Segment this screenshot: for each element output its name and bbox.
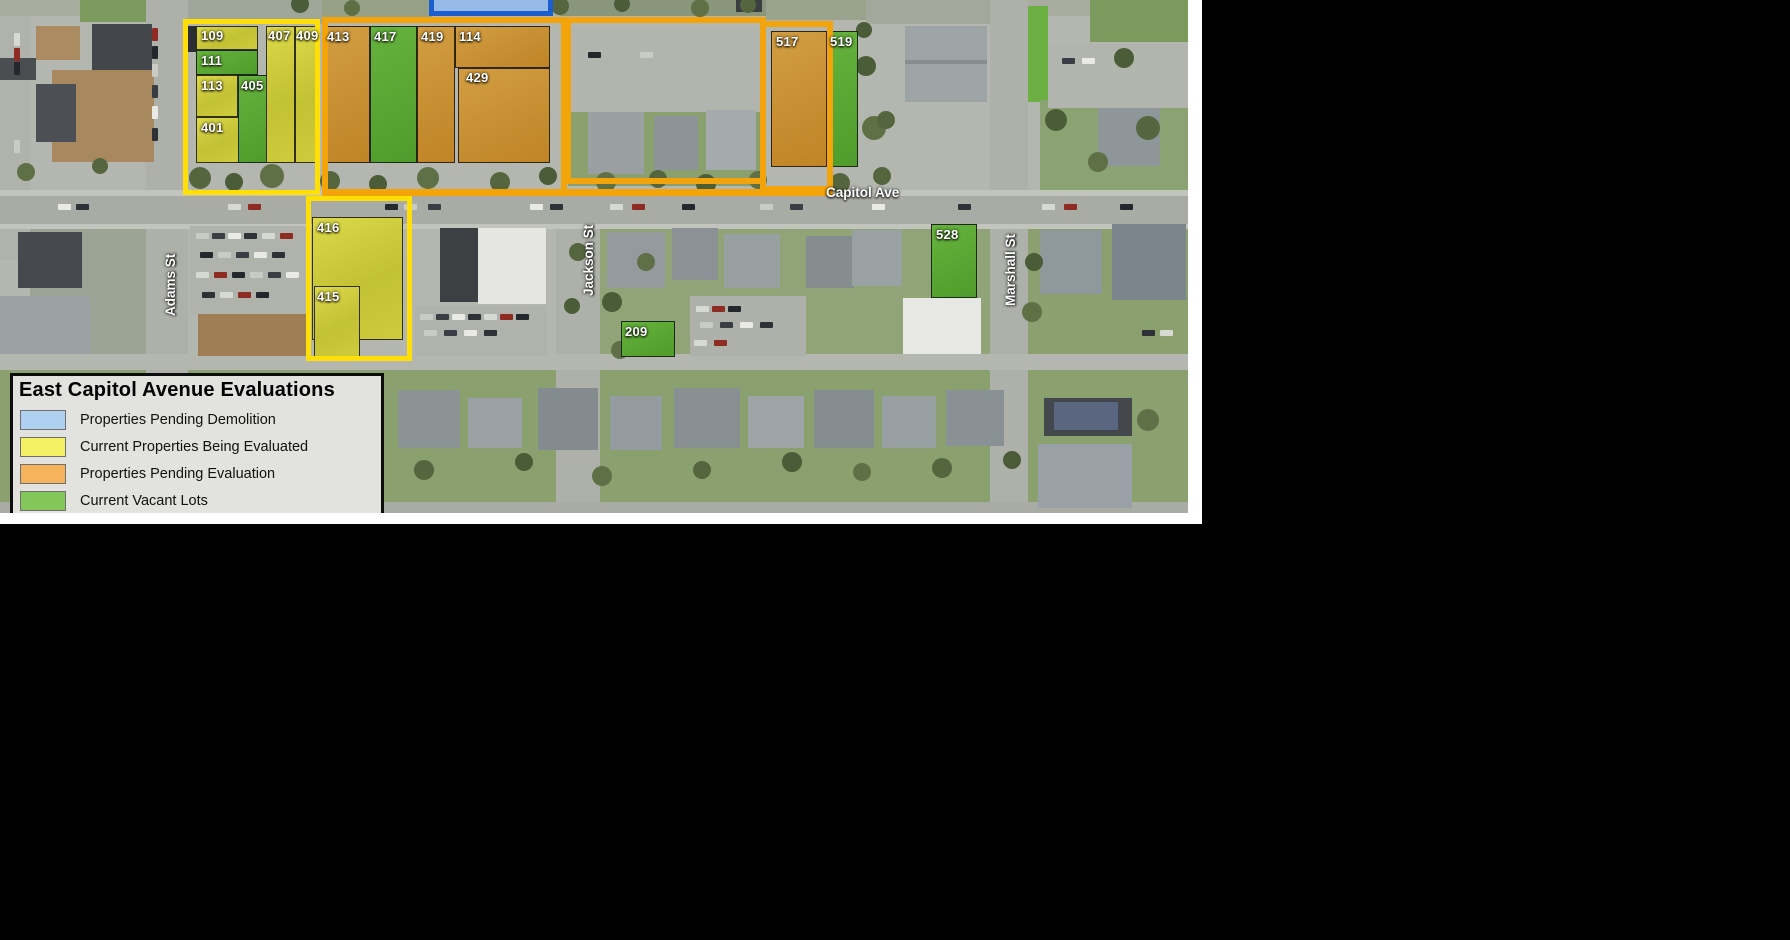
white-margin-bottom bbox=[0, 513, 1202, 524]
parcel-label-409: 409 bbox=[296, 29, 319, 42]
car bbox=[14, 33, 20, 46]
tree bbox=[1045, 109, 1067, 131]
legend: East Capitol Avenue Evaluations Properti… bbox=[10, 373, 384, 513]
parcel-label-114: 114 bbox=[459, 30, 481, 43]
tree bbox=[877, 111, 895, 129]
car bbox=[152, 64, 158, 77]
legend-item-0: Properties Pending Demolition bbox=[20, 406, 381, 433]
tree bbox=[414, 460, 434, 480]
car bbox=[272, 252, 285, 258]
legend-swatch-1 bbox=[20, 437, 66, 457]
tree bbox=[344, 0, 360, 16]
car bbox=[228, 233, 241, 239]
car bbox=[468, 314, 481, 320]
car bbox=[14, 140, 20, 153]
scenery-rect bbox=[0, 296, 90, 354]
parcel-label-528: 528 bbox=[936, 228, 959, 241]
car bbox=[250, 272, 263, 278]
car bbox=[1064, 204, 1077, 210]
scenery-rect bbox=[607, 232, 665, 288]
car bbox=[790, 204, 803, 210]
scenery-rect bbox=[610, 396, 662, 450]
parcel-label-111: 111 bbox=[201, 54, 222, 67]
scenery-rect bbox=[0, 354, 1188, 370]
tree bbox=[602, 292, 622, 312]
scenery-rect bbox=[1112, 224, 1186, 300]
car bbox=[714, 340, 727, 346]
car bbox=[464, 330, 477, 336]
scenery-rect bbox=[440, 228, 478, 302]
scenery-rect bbox=[478, 228, 546, 304]
legend-item-label-1: Current Properties Being Evaluated bbox=[80, 439, 308, 455]
legend-item-label-0: Properties Pending Demolition bbox=[80, 412, 276, 428]
car bbox=[428, 204, 441, 210]
car bbox=[530, 204, 543, 210]
tree bbox=[592, 466, 612, 486]
car bbox=[550, 204, 563, 210]
car bbox=[212, 233, 225, 239]
car bbox=[214, 272, 227, 278]
car bbox=[632, 204, 645, 210]
car bbox=[420, 314, 433, 320]
scenery-rect bbox=[538, 388, 598, 450]
car bbox=[152, 46, 158, 59]
car bbox=[872, 204, 885, 210]
evaluation-outline-pending-demolition bbox=[429, 0, 553, 16]
car bbox=[424, 330, 437, 336]
scenery-rect bbox=[1054, 402, 1118, 430]
scenery-rect bbox=[18, 232, 82, 288]
street-label-marshall-st: Marshall St bbox=[1004, 234, 1018, 306]
legend-swatch-2 bbox=[20, 464, 66, 484]
scenery-rect bbox=[1038, 444, 1132, 508]
scenery-rect bbox=[766, 0, 866, 20]
car bbox=[152, 85, 158, 98]
tree bbox=[1137, 409, 1159, 431]
car bbox=[58, 204, 71, 210]
car bbox=[268, 272, 281, 278]
parcel-label-109: 109 bbox=[201, 29, 224, 42]
car bbox=[200, 252, 213, 258]
legend-item-2: Properties Pending Evaluation bbox=[20, 460, 381, 487]
car bbox=[236, 252, 249, 258]
car bbox=[436, 314, 449, 320]
car bbox=[220, 292, 233, 298]
legend-item-3: Current Vacant Lots bbox=[20, 487, 381, 513]
parcel-label-401: 401 bbox=[201, 121, 224, 134]
street-label-jackson-st: Jackson St bbox=[582, 225, 596, 296]
scenery-rect bbox=[36, 84, 76, 142]
scenery-rect bbox=[1090, 0, 1188, 42]
legend-rows: Properties Pending DemolitionCurrent Pro… bbox=[13, 406, 381, 513]
parcel-label-416: 416 bbox=[317, 221, 340, 234]
scenery-rect bbox=[905, 26, 987, 102]
parcel-label-113: 113 bbox=[201, 79, 223, 92]
white-margin-right bbox=[1188, 0, 1202, 524]
tree bbox=[693, 461, 711, 479]
tree bbox=[1003, 451, 1021, 469]
car bbox=[760, 204, 773, 210]
tree bbox=[932, 458, 952, 478]
tree bbox=[1025, 253, 1043, 271]
car bbox=[248, 204, 261, 210]
scenery-rect bbox=[724, 234, 780, 288]
scenery-rect bbox=[190, 226, 308, 314]
car bbox=[500, 314, 513, 320]
aerial-map-image: 1091111134014054074094134174191144295175… bbox=[0, 0, 1188, 513]
car bbox=[152, 106, 158, 119]
tree bbox=[1136, 116, 1160, 140]
car bbox=[286, 272, 299, 278]
tree bbox=[856, 22, 872, 38]
scenery-rect bbox=[36, 26, 80, 60]
car bbox=[256, 292, 269, 298]
tree bbox=[17, 163, 35, 181]
tree bbox=[873, 167, 891, 185]
car bbox=[232, 272, 245, 278]
evaluation-outline-pending-evaluation-mid bbox=[565, 17, 766, 184]
scenery-rect bbox=[866, 0, 996, 24]
car bbox=[1082, 58, 1095, 64]
evaluation-outline-being-evaluated-north bbox=[183, 19, 320, 195]
car bbox=[728, 306, 741, 312]
scenery-rect bbox=[806, 236, 854, 288]
tree bbox=[782, 452, 802, 472]
car bbox=[196, 233, 209, 239]
parcel-label-209: 209 bbox=[625, 325, 648, 338]
car bbox=[516, 314, 529, 320]
car bbox=[1142, 330, 1155, 336]
legend-item-label-3: Current Vacant Lots bbox=[80, 493, 208, 509]
legend-swatch-0 bbox=[20, 410, 66, 430]
car bbox=[228, 204, 241, 210]
scenery-rect bbox=[92, 24, 152, 70]
car bbox=[694, 340, 707, 346]
car bbox=[1062, 58, 1075, 64]
car bbox=[280, 233, 293, 239]
scenery-rect bbox=[468, 398, 522, 448]
car bbox=[712, 306, 725, 312]
car bbox=[238, 292, 251, 298]
scenery-rect bbox=[1040, 230, 1102, 294]
legend-item-label-2: Properties Pending Evaluation bbox=[80, 466, 275, 482]
scenery-rect bbox=[748, 396, 804, 448]
car bbox=[484, 314, 497, 320]
car bbox=[700, 322, 713, 328]
legend-swatch-3 bbox=[20, 491, 66, 511]
viewer-canvas: { "map_title": "East Capitol Avenue Eval… bbox=[0, 0, 1790, 940]
car bbox=[958, 204, 971, 210]
parcel-label-519: 519 bbox=[830, 35, 853, 48]
tree bbox=[1022, 302, 1042, 322]
tree bbox=[856, 56, 876, 76]
car bbox=[218, 252, 231, 258]
scenery-rect bbox=[882, 396, 936, 448]
car bbox=[202, 292, 215, 298]
scenery-rect bbox=[0, 196, 1188, 224]
car bbox=[152, 128, 158, 141]
car bbox=[14, 62, 20, 75]
scenery-rect bbox=[852, 230, 902, 286]
parcel-label-419: 419 bbox=[421, 30, 444, 43]
car bbox=[76, 204, 89, 210]
car bbox=[682, 204, 695, 210]
parcel-label-415: 415 bbox=[317, 290, 340, 303]
scenery-rect bbox=[80, 0, 150, 22]
evaluation-outline-pending-evaluation-west bbox=[322, 17, 567, 195]
car bbox=[760, 322, 773, 328]
car bbox=[1160, 330, 1173, 336]
tree bbox=[515, 453, 533, 471]
car bbox=[196, 272, 209, 278]
car bbox=[152, 28, 158, 41]
tree bbox=[564, 298, 580, 314]
scenery-rect bbox=[322, 0, 432, 18]
parcel-label-407: 407 bbox=[268, 29, 291, 42]
scenery-rect bbox=[674, 388, 740, 448]
tree bbox=[637, 253, 655, 271]
car bbox=[1042, 204, 1055, 210]
car bbox=[244, 233, 257, 239]
car bbox=[610, 204, 623, 210]
tree bbox=[92, 158, 108, 174]
car bbox=[1120, 204, 1133, 210]
parcel-label-517: 517 bbox=[776, 35, 799, 48]
scenery-rect bbox=[198, 314, 308, 356]
street-label-capitol-ave: Capitol Ave bbox=[826, 186, 899, 200]
street-label-adams-st: Adams St bbox=[164, 254, 178, 316]
scenery-rect bbox=[946, 390, 1004, 446]
legend-title: East Capitol Avenue Evaluations bbox=[19, 379, 381, 402]
scenery-rect bbox=[814, 390, 874, 448]
car bbox=[14, 48, 20, 61]
car bbox=[444, 330, 457, 336]
scenery-rect bbox=[905, 60, 987, 64]
scenery-rect bbox=[672, 228, 718, 280]
car bbox=[452, 314, 465, 320]
parcel-label-413: 413 bbox=[327, 30, 350, 43]
tree bbox=[853, 463, 871, 481]
car bbox=[740, 322, 753, 328]
car bbox=[262, 233, 275, 239]
parcel-label-405: 405 bbox=[241, 79, 264, 92]
scenery-rect bbox=[398, 390, 460, 448]
scenery-rect bbox=[903, 298, 981, 354]
car bbox=[720, 322, 733, 328]
parcel-label-429: 429 bbox=[466, 71, 489, 84]
car bbox=[484, 330, 497, 336]
legend-item-1: Current Properties Being Evaluated bbox=[20, 433, 381, 460]
tree bbox=[1088, 152, 1108, 172]
tree bbox=[1114, 48, 1134, 68]
car bbox=[696, 306, 709, 312]
parcel-label-417: 417 bbox=[374, 30, 397, 43]
car bbox=[254, 252, 267, 258]
